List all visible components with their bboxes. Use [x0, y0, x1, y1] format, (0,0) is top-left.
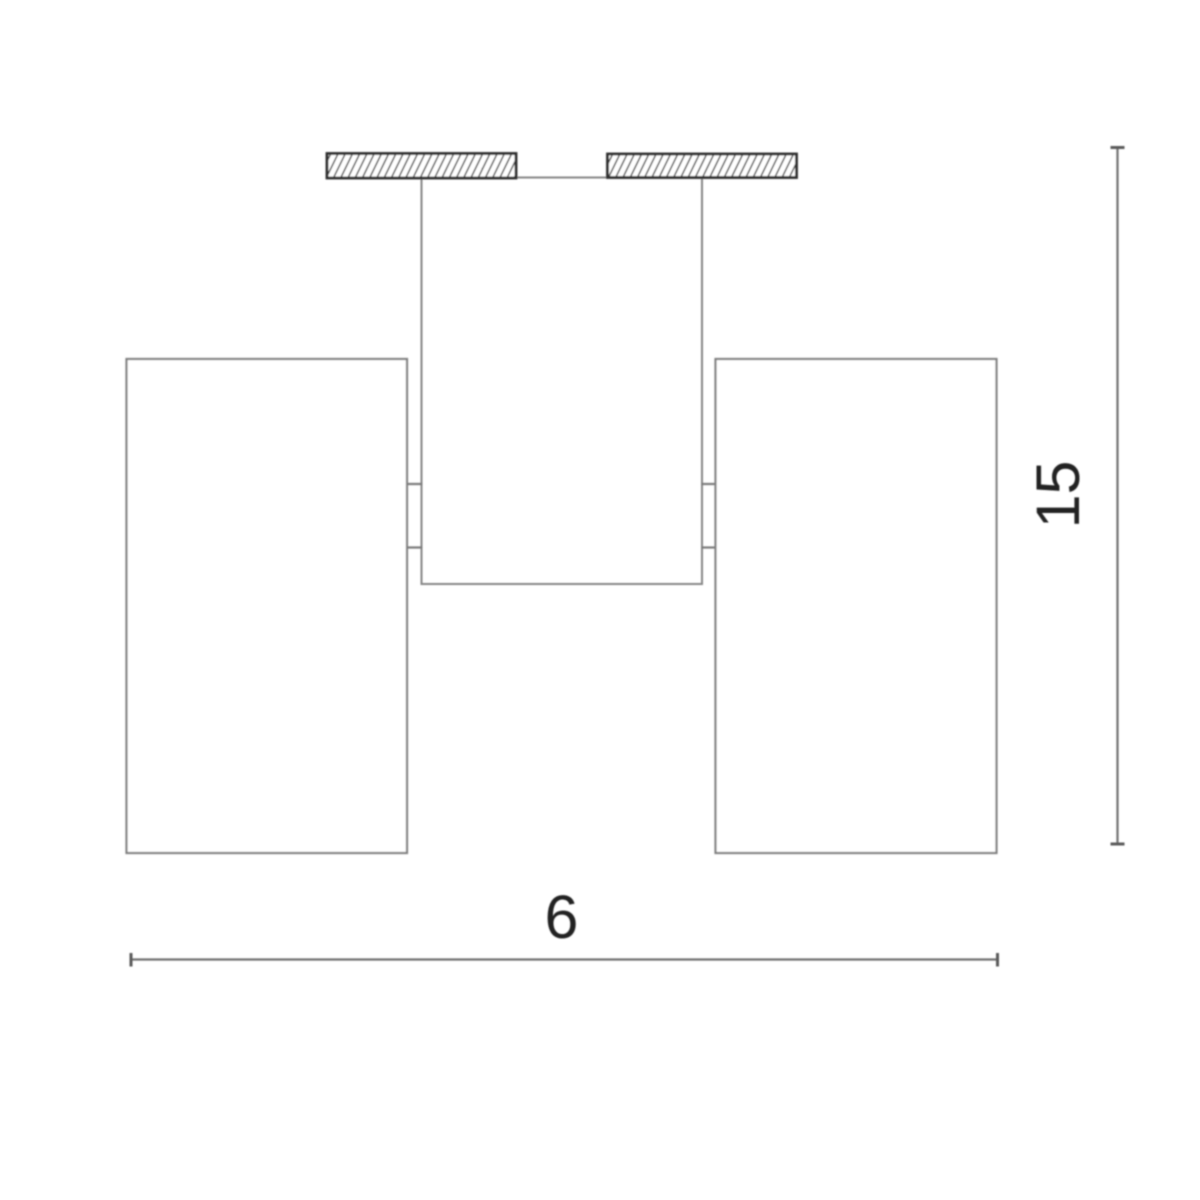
svg-text:15: 15 — [1024, 461, 1092, 529]
svg-text:6: 6 — [545, 883, 579, 951]
